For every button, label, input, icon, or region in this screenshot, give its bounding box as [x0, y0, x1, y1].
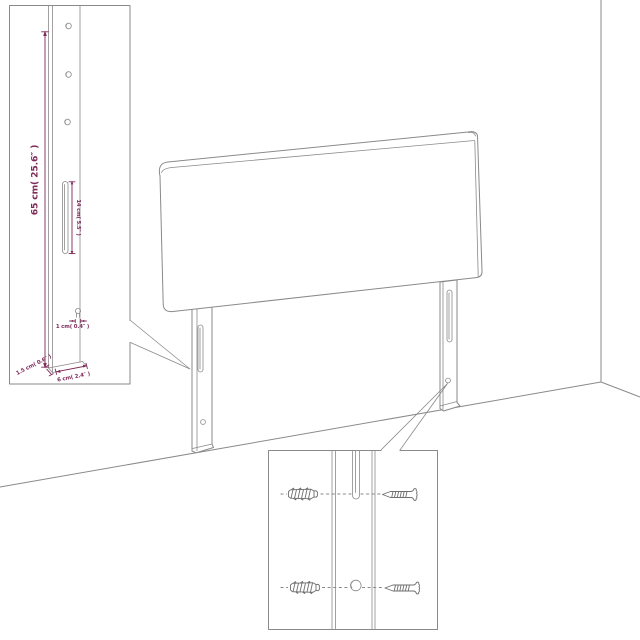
leg-dimension-detail-box: 65 cm( 25.6″ ) 14 cm( 5.5″ ) 1 cm( 0.4″ …: [10, 6, 131, 385]
headboard-main-view: [159, 132, 482, 453]
hole-dimension-label: 1 cm( 0.4″ ): [56, 324, 89, 330]
height-dimension-label: 65 cm( 25.6″ ): [30, 145, 41, 215]
hardware-detail-box: [269, 451, 438, 630]
headboard-diagram-svg: 65 cm( 25.6″ ) 14 cm( 5.5″ ) 1 cm( 0.4″ …: [0, 0, 640, 640]
callout-wedge-top-left: [131, 321, 191, 370]
diagram-canvas: 65 cm( 25.6″ ) 14 cm( 5.5″ ) 1 cm( 0.4″ …: [0, 0, 640, 640]
headboard-left-leg: [192, 307, 214, 453]
callout-wedge-bottom: [381, 384, 448, 451]
headboard-right-leg: [440, 280, 460, 411]
headboard-panel: [159, 132, 482, 312]
slot-dimension-label: 14 cm( 5.5″ ): [75, 199, 81, 235]
